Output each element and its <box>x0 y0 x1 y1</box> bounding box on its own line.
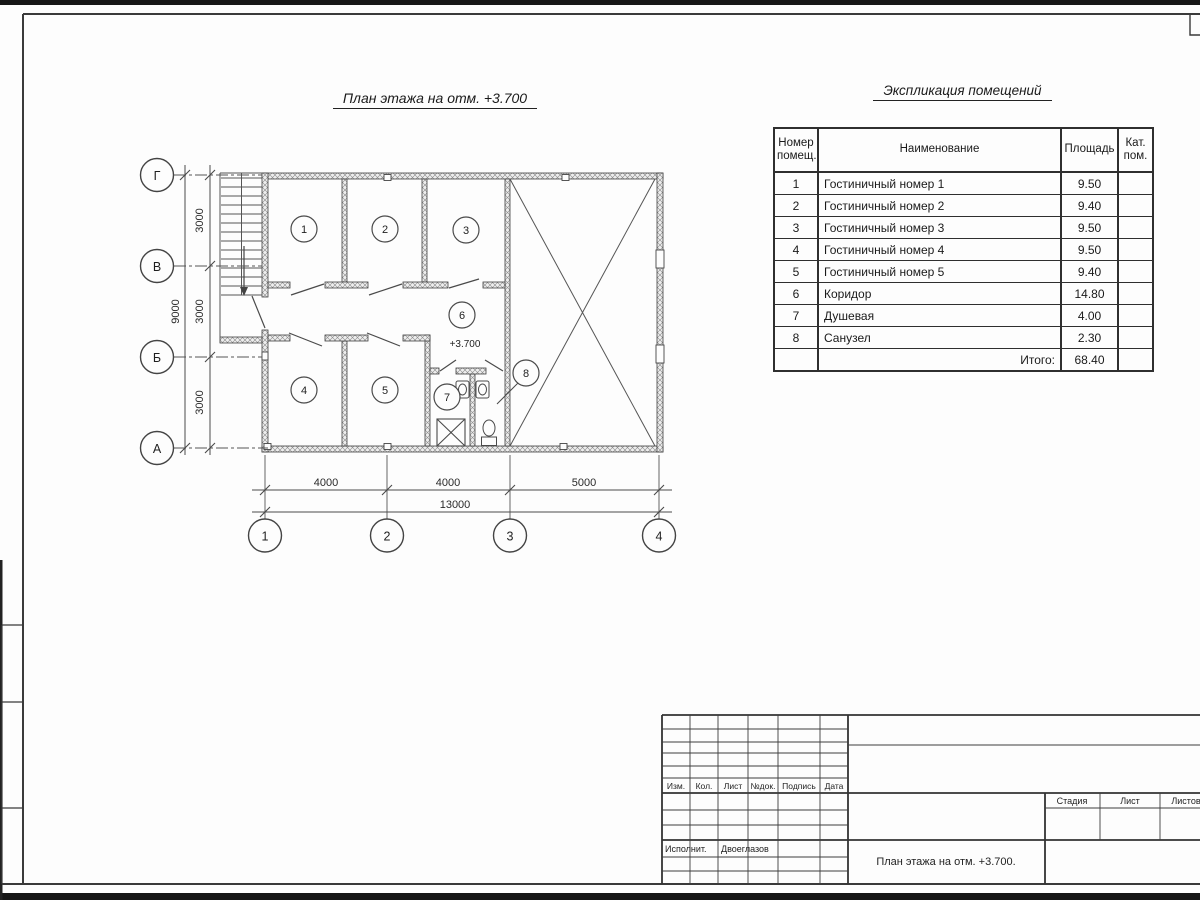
dim-v-3000-2: 3000 <box>194 299 206 323</box>
room-schedule-table: Номер помещ. Наименование Площадь Кат. п… <box>773 127 1154 372</box>
room-name: Душевая <box>818 305 1061 327</box>
room-number-1: 1 <box>301 224 307 236</box>
dim-v-3000-1: 3000 <box>194 208 206 232</box>
room-name: Гостиничный номер 4 <box>818 239 1061 261</box>
room-num: 7 <box>774 305 818 327</box>
room-number-4: 4 <box>301 385 307 397</box>
room-area: 9.50 <box>1061 239 1118 261</box>
schedule-total-row: Итого: 68.40 <box>774 349 1153 372</box>
dim-h-4000-2: 4000 <box>436 477 460 489</box>
toilet-icon <box>482 420 497 446</box>
axis-label-a: А <box>153 442 162 456</box>
shower-tray <box>437 419 465 446</box>
axis-label-2: 2 <box>384 530 391 544</box>
room-num: 4 <box>774 239 818 261</box>
frame-corner-box <box>1190 14 1200 35</box>
room-number-8: 8 <box>523 368 529 380</box>
room-num: 5 <box>774 261 818 283</box>
room-name: Санузел <box>818 327 1061 349</box>
total-empty-cat <box>1118 349 1153 372</box>
schedule-row: 2 Гостиничный номер 2 9.40 <box>774 195 1153 217</box>
total-label: Итого: <box>818 349 1061 372</box>
room-num: 3 <box>774 217 818 239</box>
room-name: Коридор <box>818 283 1061 305</box>
room-num: 1 <box>774 172 818 195</box>
schedule-row: 1 Гостиничный номер 1 9.50 <box>774 172 1153 195</box>
schedule-title: Экспликация помещений <box>773 83 1152 98</box>
room-area: 9.50 <box>1061 217 1118 239</box>
axis-bubbles-bottom <box>249 519 676 552</box>
room-bubbles <box>291 216 539 410</box>
axis-label-1: 1 <box>262 530 269 544</box>
room-num: 6 <box>774 283 818 305</box>
plan-title: План этажа на отм. +3.700 <box>287 90 583 106</box>
room-num: 2 <box>774 195 818 217</box>
room-cat <box>1118 217 1153 239</box>
tb-executor-name: Двоеглазов <box>721 844 769 854</box>
stairs <box>220 173 262 343</box>
room-cat <box>1118 283 1153 305</box>
room-name: Гостиничный номер 3 <box>818 217 1061 239</box>
room-area: 9.40 <box>1061 195 1118 217</box>
tb-sheets-label: Листов <box>1171 796 1200 806</box>
schedule-row: 7 Душевая 4.00 <box>774 305 1153 327</box>
room-cat <box>1118 261 1153 283</box>
header-room-area: Площадь <box>1061 128 1118 172</box>
tb-sheet-label: Лист <box>1120 796 1140 806</box>
schedule-row: 8 Санузел 2.30 <box>774 327 1153 349</box>
room-cat <box>1118 172 1153 195</box>
walls <box>220 173 663 452</box>
room-number-2: 2 <box>382 224 388 236</box>
axis-label-g: Г <box>154 169 161 183</box>
dim-h-4000-1: 4000 <box>314 477 338 489</box>
schedule-row: 3 Гостиничный номер 3 9.50 <box>774 217 1153 239</box>
axis-leaders-left <box>174 175 268 448</box>
dim-h-13000: 13000 <box>440 499 471 511</box>
total-empty-num <box>774 349 818 372</box>
axis-label-4: 4 <box>656 530 663 544</box>
axis-label-v: В <box>153 260 161 274</box>
dim-v-9000: 9000 <box>170 299 182 323</box>
room-number-6: 6 <box>459 310 465 322</box>
room-name: Гостиничный номер 5 <box>818 261 1061 283</box>
header-room-number: Номер помещ. <box>774 128 818 172</box>
room-name: Гостиничный номер 2 <box>818 195 1061 217</box>
tb-col-izm: Изм. <box>667 781 685 791</box>
dim-h-5000: 5000 <box>572 477 596 489</box>
axis-label-b: Б <box>153 351 161 365</box>
tb-col-kol: Кол. <box>696 781 713 791</box>
crossed-area <box>510 179 655 446</box>
schedule-row: 4 Гостиничный номер 4 9.50 <box>774 239 1153 261</box>
room-cat <box>1118 195 1153 217</box>
room-area: 14.80 <box>1061 283 1118 305</box>
header-room-name: Наименование <box>818 128 1061 172</box>
tb-stage-label: Стадия <box>1057 796 1088 806</box>
tb-executor-label: Исполнит. <box>665 844 707 854</box>
header-room-category: Кат. пом. <box>1118 128 1153 172</box>
room-cat <box>1118 239 1153 261</box>
schedule-header-row: Номер помещ. Наименование Площадь Кат. п… <box>774 128 1153 172</box>
room-name: Гостиничный номер 1 <box>818 172 1061 195</box>
axis-label-3: 3 <box>507 530 514 544</box>
tb-doc-title: План этажа на отм. +3.700. <box>876 856 1015 868</box>
room-area: 4.00 <box>1061 305 1118 327</box>
tb-col-list: Лист <box>724 781 743 791</box>
total-area: 68.40 <box>1061 349 1118 372</box>
schedule-row: 6 Коридор 14.80 <box>774 283 1153 305</box>
left-margin-cells <box>2 625 23 884</box>
room-cat <box>1118 305 1153 327</box>
room-area: 9.50 <box>1061 172 1118 195</box>
room-area: 2.30 <box>1061 327 1118 349</box>
elevation-mark: +3.700 <box>450 339 481 350</box>
room-number-5: 5 <box>382 385 388 397</box>
dim-v-3000-3: 3000 <box>194 390 206 414</box>
room-number-7: 7 <box>444 392 450 404</box>
room-num: 8 <box>774 327 818 349</box>
title-block: Изм. Кол. Лист №док. Подпись Дата Исполн… <box>662 715 1200 884</box>
tb-col-ndok: №док. <box>751 781 776 791</box>
room-number-3: 3 <box>463 225 469 237</box>
room-cat <box>1118 327 1153 349</box>
drawing-sheet: Г В Б А 3000 3000 3000 9000 4000 4000 50… <box>0 0 1200 900</box>
tb-col-podpis: Подпись <box>782 781 816 791</box>
room-area: 9.40 <box>1061 261 1118 283</box>
floor-plan: Г В Б А 3000 3000 3000 9000 4000 4000 50… <box>141 159 676 553</box>
axis-bubbles-left <box>141 159 174 465</box>
tb-col-data: Дата <box>825 781 844 791</box>
schedule-row: 5 Гостиничный номер 5 9.40 <box>774 261 1153 283</box>
